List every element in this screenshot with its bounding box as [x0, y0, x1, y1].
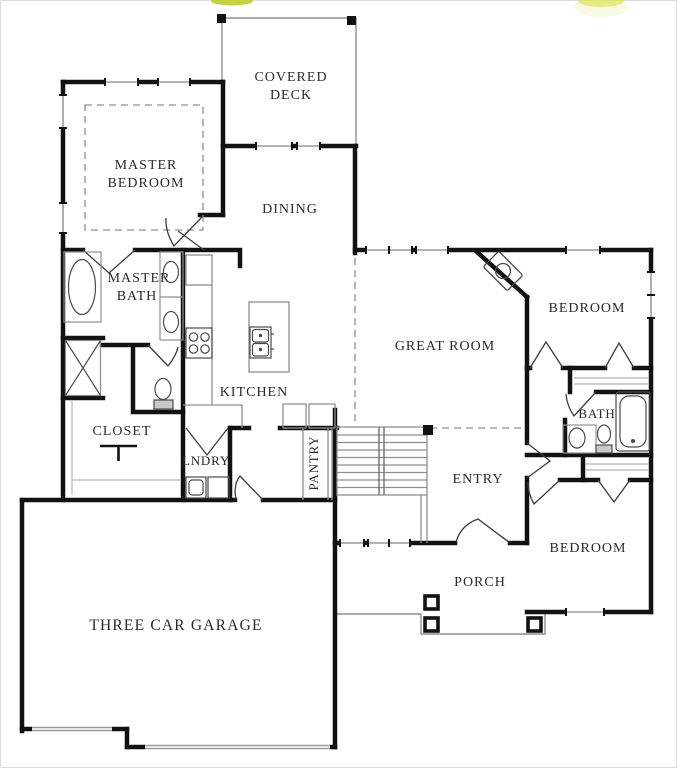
window-icon [297, 142, 320, 150]
room-label-dining: DINING [262, 202, 318, 217]
room-label-great-room: GREAT ROOM [395, 339, 495, 354]
window-icon [340, 539, 364, 547]
window-icon [366, 246, 412, 254]
window-icon [105, 78, 138, 86]
deck-post-icon [347, 16, 356, 25]
garage-door-icon [145, 743, 330, 751]
room-label-kitchen: KITCHEN [220, 385, 288, 400]
window-icon [59, 95, 67, 128]
porch-column-icon [425, 596, 438, 609]
room-label-laundry: LNDRY [182, 453, 230, 468]
room-label-bedroom-lower: BEDROOM [549, 541, 626, 556]
window-icon [647, 272, 655, 318]
room-label-entry: ENTRY [453, 472, 504, 487]
room-label-bedroom-upper: BEDROOM [548, 301, 625, 316]
porch-column-icon [425, 618, 438, 631]
deck-post-icon [217, 14, 226, 23]
room-label-closet: CLOSET [93, 424, 152, 439]
toilet-tank [596, 445, 612, 453]
room-label-master-bath: MASTER [108, 271, 171, 286]
window-icon [566, 246, 600, 254]
floor-plan-canvas: COVERED DECK MASTER BEDROOM DINING MASTE… [0, 0, 677, 768]
window-icon [566, 608, 604, 616]
window-icon [256, 142, 292, 150]
room-label-covered-deck: COVERED [254, 70, 327, 85]
garage-door-icon [32, 725, 112, 733]
window-icon [416, 246, 448, 254]
room-label-bath: BATH [578, 406, 615, 421]
room-label-master-bedroom: MASTER [115, 158, 178, 173]
room-label-master-bath: BATH [117, 289, 158, 304]
toilet-tank [154, 400, 173, 409]
room-label-master-bedroom: BEDROOM [107, 176, 184, 191]
window-icon [59, 203, 67, 233]
window-icon [368, 539, 410, 547]
window-icon [158, 78, 190, 86]
room-label-covered-deck: DECK [270, 88, 312, 103]
floor-plan-drawing: COVERED DECK MASTER BEDROOM DINING MASTE… [0, 0, 677, 768]
room-label-garage: THREE CAR GARAGE [89, 617, 262, 634]
room-label-pantry: PANTRY [306, 436, 321, 491]
room-label-porch: PORCH [454, 575, 506, 590]
porch-column-icon [528, 618, 541, 631]
